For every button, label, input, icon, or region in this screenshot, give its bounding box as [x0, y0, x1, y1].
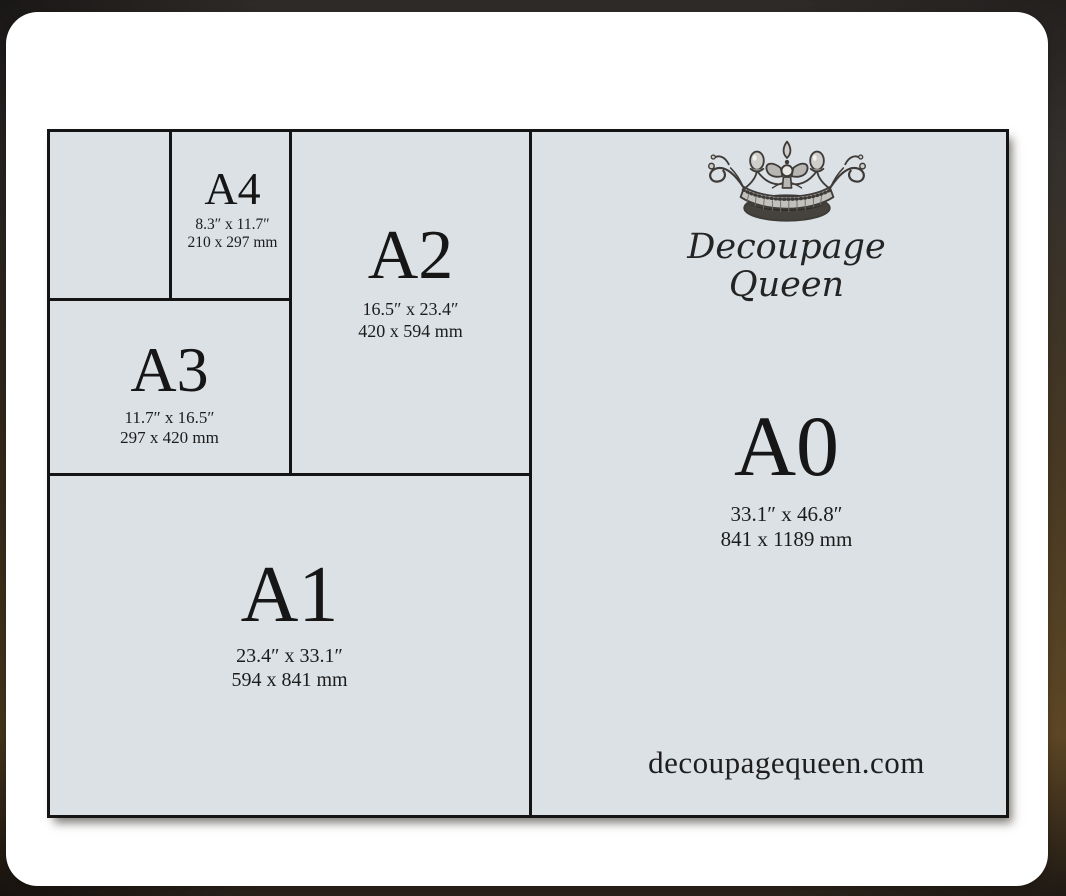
- size-mm-a2: 420 x 594 mm: [358, 321, 463, 342]
- page-background: { "brand": { "line1": "Decoupage", "line…: [0, 0, 1066, 896]
- size-label-a3: A3: [120, 338, 219, 402]
- size-cell-a1: A1 23.4″ x 33.1″ 594 x 841 mm: [50, 476, 529, 815]
- brand-name-line2: Queen: [567, 267, 1006, 305]
- size-cell-a2: A2 16.5″ x 23.4″ 420 x 594 mm: [292, 132, 529, 473]
- size-mm-a3: 297 x 420 mm: [120, 428, 219, 448]
- size-inches-a1: 23.4″ x 33.1″: [231, 645, 347, 669]
- paper-sizes-diagram: A4 8.3″ x 11.7″ 210 x 297 mm A2 16.5″ x …: [47, 129, 1009, 818]
- size-label-a1: A1: [231, 555, 347, 635]
- crown-icon: [567, 137, 1006, 229]
- size-mm-a0: 841 x 1189 mm: [567, 527, 1006, 552]
- size-label-a2: A2: [358, 221, 463, 291]
- size-cell-a3: A3 11.7″ x 16.5″ 297 x 420 mm: [50, 301, 289, 473]
- size-inches-a3: 11.7″ x 16.5″: [120, 408, 219, 428]
- size-cell-a4: A4 8.3″ x 11.7″ 210 x 297 mm: [172, 132, 289, 298]
- size-mm-a4: 210 x 297 mm: [188, 234, 278, 252]
- size-inches-a0: 33.1″ x 46.8″: [567, 502, 1006, 527]
- website-text: decoupagequeen.com: [567, 744, 1006, 781]
- size-inches-a4: 8.3″ x 11.7″: [188, 216, 278, 234]
- size-label-a0: A0: [567, 403, 1006, 489]
- brand-name-line1: Decoupage: [567, 229, 1006, 267]
- size-mm-a1: 594 x 841 mm: [231, 669, 347, 693]
- size-cell-blank: [50, 132, 169, 298]
- size-inches-a2: 16.5″ x 23.4″: [358, 299, 463, 320]
- size-label-a4: A4: [188, 166, 278, 212]
- brand-name: Decoupage Queen: [567, 229, 1006, 305]
- size-cell-a0: Decoupage Queen A0 33.1″ x 46.8″ 841 x 1…: [532, 132, 1006, 815]
- product-image-card: A4 8.3″ x 11.7″ 210 x 297 mm A2 16.5″ x …: [6, 12, 1048, 886]
